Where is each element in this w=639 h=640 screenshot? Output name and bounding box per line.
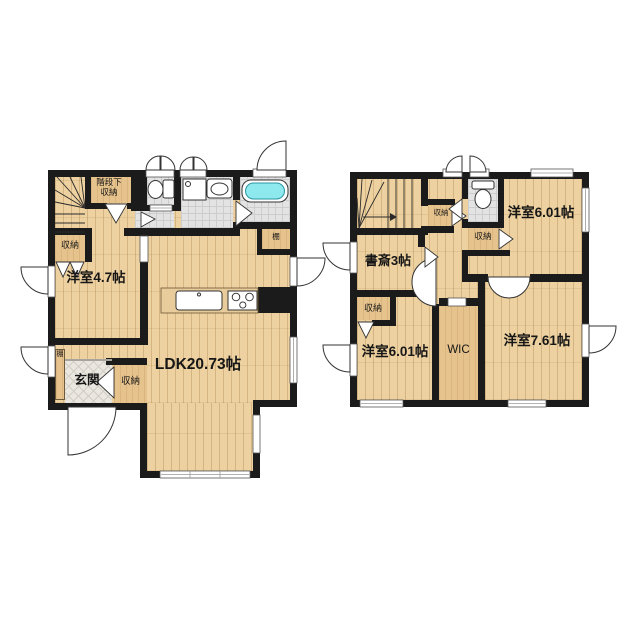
- shelf-left-label: 棚: [55, 351, 65, 359]
- washroom-floor: [181, 177, 233, 228]
- genkan-label: 玄関: [63, 373, 111, 387]
- entry-closet-label: 収納: [114, 377, 147, 388]
- wic-label: WIC: [439, 344, 478, 357]
- ldk-extension-floor: [147, 403, 253, 471]
- stair-storage-label-line2: 収納: [86, 188, 132, 198]
- study-label: 書斎3帖: [352, 254, 424, 269]
- stair-closet-label: 収納: [426, 209, 456, 217]
- bedroom47-label: 洋室4.7帖: [50, 270, 142, 285]
- bedroom-se-label: 洋室7.61帖: [489, 333, 585, 348]
- floor-plan-canvas: 階段下 収納 収納 洋室4.7帖 棚 LDK20.73帖 玄関 収納 棚 収納 …: [0, 0, 639, 640]
- toilet2-floor: [468, 179, 498, 222]
- toilet1-floor: [147, 177, 174, 205]
- toilet1-passage-floor: [135, 211, 174, 228]
- ldk-label: LDK20.73帖: [138, 356, 258, 373]
- bedroom-sw-label: 洋室6.01帖: [351, 344, 439, 359]
- shelf-right-label: 棚: [262, 233, 290, 241]
- wc-closet-label: 収納: [466, 232, 500, 242]
- stair-storage-label: 階段下 収納: [86, 178, 132, 197]
- bathroom-floor: [240, 177, 290, 222]
- left-closet-label: 収納: [352, 303, 394, 313]
- bedroom-ne-label: 洋室6.01帖: [497, 205, 585, 220]
- closet-a-label: 収納: [55, 240, 85, 250]
